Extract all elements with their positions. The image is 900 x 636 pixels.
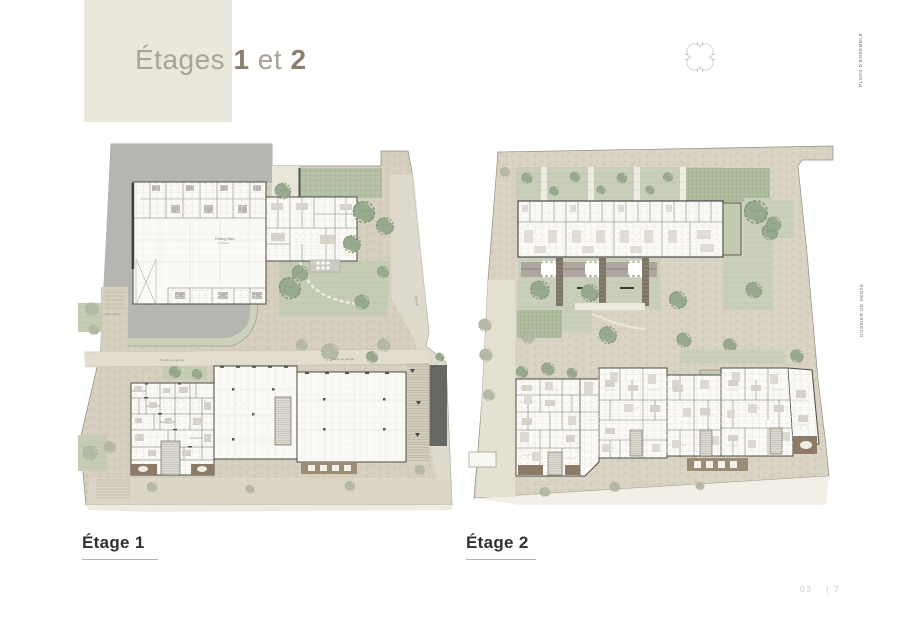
svg-text:Venelle de garage: Venelle de garage bbox=[160, 358, 185, 362]
svg-text:accès parking: accès parking bbox=[104, 312, 121, 316]
svg-text:Venelle de garage: Venelle de garage bbox=[330, 357, 355, 361]
